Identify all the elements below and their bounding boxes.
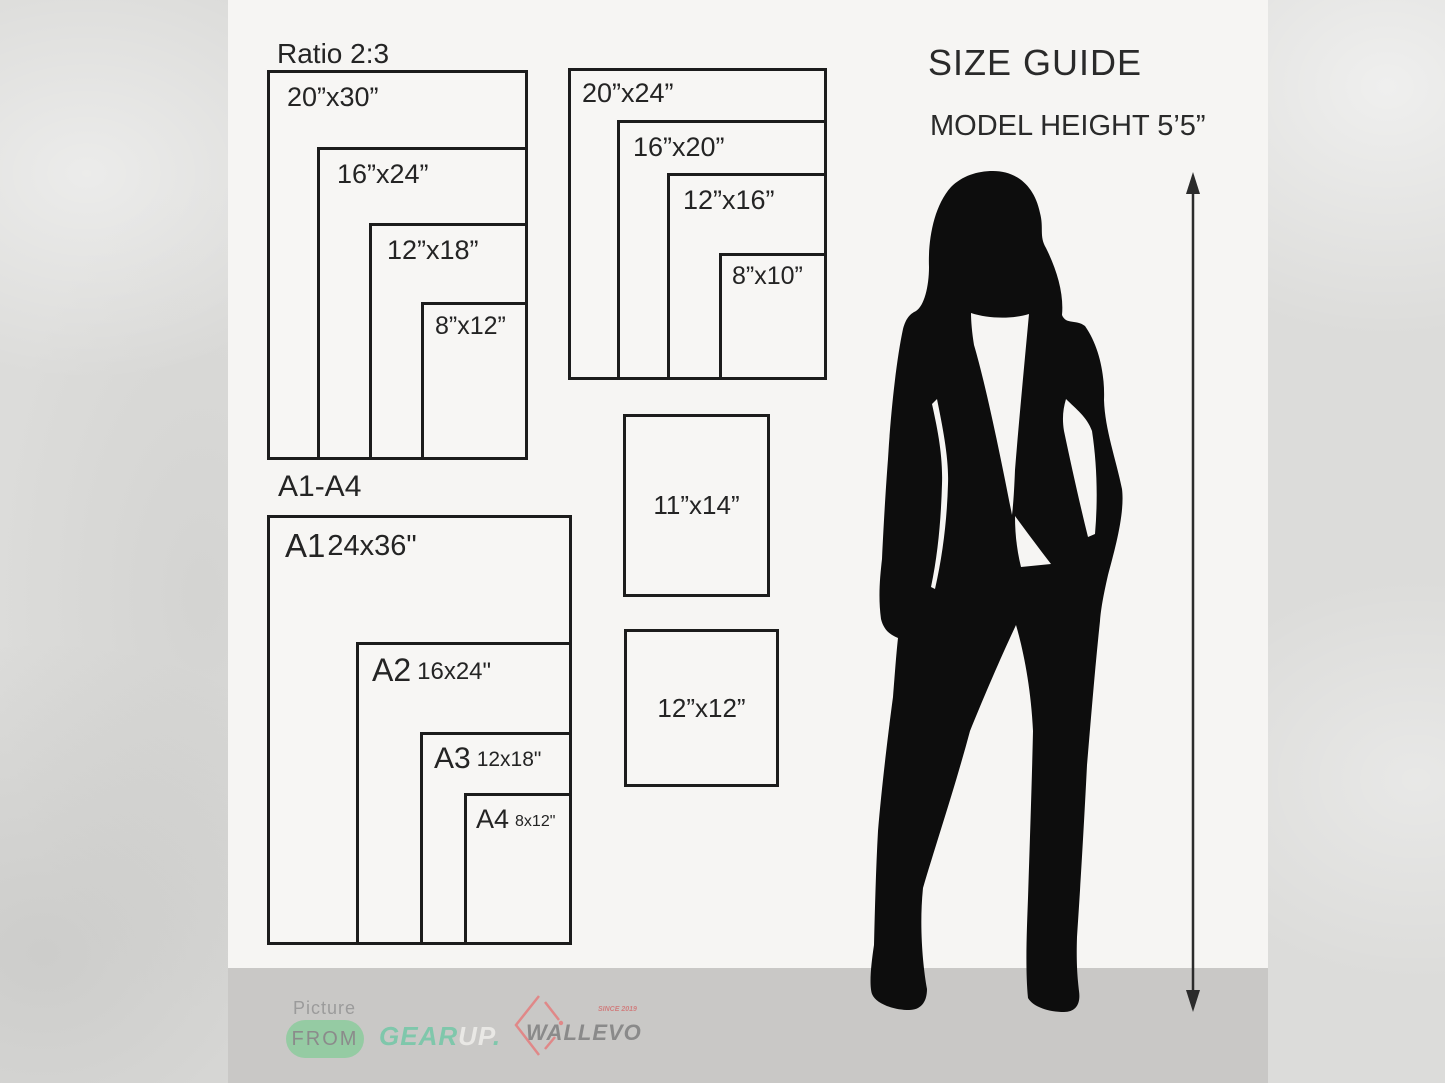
a3-dim: 12x18" [477, 748, 542, 772]
a3-name: A3 [434, 742, 471, 776]
label-20x30: 20”x30” [287, 82, 379, 113]
ratio23-title: Ratio 2:3 [277, 38, 389, 70]
label-a2: A216x24" [372, 652, 491, 689]
aseries-title: A1-A4 [278, 470, 361, 504]
from-label: FROM [292, 1028, 359, 1051]
a1-name: A1 [285, 527, 325, 565]
label-12x12: 12”x12” [624, 629, 779, 787]
label-12x16: 12”x16” [683, 185, 775, 216]
wallevo-logo: WALLEVO [526, 1020, 642, 1046]
a4-dim: 8x12" [515, 813, 555, 831]
page-title: SIZE GUIDE [900, 42, 1170, 84]
label-8x10: 8”x10” [732, 262, 803, 291]
from-badge: FROM [286, 1020, 364, 1058]
wallevo-since-label: SINCE 2019 [598, 1006, 637, 1013]
gearup-logo: GEARUP. [379, 1021, 501, 1052]
label-20x24: 20”x24” [582, 78, 674, 109]
gearup-gear: GEAR [379, 1021, 458, 1051]
label-16x20: 16”x20” [633, 132, 725, 163]
a2-name: A2 [372, 652, 411, 689]
label-8x12: 8”x12” [435, 312, 506, 341]
label-a1: A124x36" [285, 527, 417, 565]
height-measure-arrow [1179, 168, 1207, 1016]
label-12x18: 12”x18” [387, 235, 479, 266]
model-silhouette [865, 168, 1165, 1030]
label-a4: A48x12" [476, 804, 555, 835]
label-11x14: 11”x14” [623, 414, 770, 597]
gearup-dot: . [493, 1021, 501, 1051]
a4-name: A4 [476, 804, 509, 835]
model-height-label: MODEL HEIGHT 5’5” [930, 110, 1206, 143]
picture-label: Picture [293, 998, 356, 1019]
a1-dim: 24x36" [327, 530, 416, 563]
label-16x24: 16”x24” [337, 159, 429, 190]
a2-dim: 16x24" [417, 658, 491, 686]
gearup-up: UP [458, 1021, 493, 1051]
label-a3: A312x18" [434, 742, 541, 776]
